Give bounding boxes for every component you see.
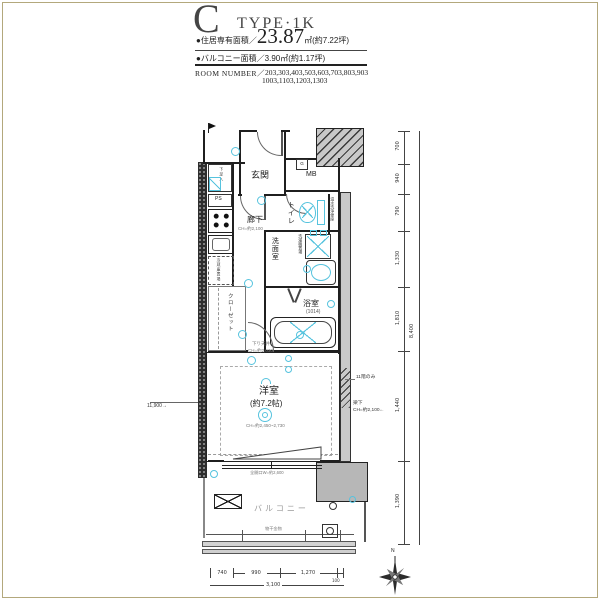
header-divider-thin [195, 50, 367, 51]
fridge-space-label: 冷蔵庫置場 [217, 258, 221, 282]
bathroom-label: 浴室 [303, 300, 319, 308]
area-line: ●住居専有面積／ 23.87 ㎡(約7.22坪) [196, 28, 376, 46]
corridor-label: 廊下 [247, 216, 263, 224]
left-distance-label: 11,900→ [147, 404, 167, 409]
ceiling-light-icon [257, 196, 266, 205]
flag-marker-icon [209, 123, 216, 129]
wall [239, 130, 241, 196]
ceiling-light-icon [238, 330, 247, 339]
beam-under-note-1: 梁下 [353, 401, 363, 406]
wall [338, 158, 340, 354]
laundry-fitting-note: 物干金物 [264, 527, 283, 531]
washer-space-label: 洗濯機置場 [298, 234, 302, 254]
bath-door-line [294, 288, 301, 302]
light-half-icon [261, 378, 271, 384]
entrance-door-leaf [281, 132, 283, 156]
wall [284, 130, 286, 196]
balcony-area-label: ●バルコニー面積／ [196, 53, 265, 64]
ceiling-light-icon [296, 331, 304, 339]
closet-label: クローゼット [226, 293, 232, 332]
entrance-door-arc [257, 132, 281, 156]
concrete-column [316, 462, 368, 502]
evacuation-hatch-x [215, 495, 241, 508]
header-divider-thick [195, 64, 367, 66]
pipe-space-label: PS [215, 197, 222, 202]
dim-value: 1,330 [395, 244, 401, 272]
window-note: 全開口W=約2,600 [250, 471, 284, 475]
main-room-ch-label: CH=約2,450~2,730 [246, 424, 285, 429]
dim-tick [398, 461, 410, 462]
beam-floor-note: 11階のみ [356, 375, 375, 380]
beam-under-note-2: CH=約2,100← [353, 408, 384, 413]
bathroom-size-label: (1014) [306, 310, 320, 315]
dim-tick [233, 568, 234, 578]
drop-ceiling-note-2: CH=約2,030 [248, 349, 273, 354]
balcony-edge-slab [202, 541, 356, 547]
dim-tick [398, 231, 410, 232]
entrance-label: 玄関 [251, 171, 269, 180]
dim-tick [398, 351, 410, 352]
dim-value: 700 [395, 132, 401, 160]
beam-note-leader [345, 379, 355, 380]
area-label: ●住居専有面積／ [196, 35, 257, 46]
common-area-hatch [316, 128, 364, 167]
balcony-label: バルコニー [254, 505, 309, 513]
toilet-tank-icon [317, 200, 325, 225]
window-center-tick [271, 461, 272, 469]
kitchen-sink-bowl [212, 238, 230, 251]
dim-tick [398, 194, 410, 195]
fridge-space-box [208, 256, 234, 285]
area-value: 23.87 [257, 28, 304, 46]
wall [266, 230, 340, 232]
drain-box-circle [326, 527, 334, 535]
wall [264, 194, 286, 196]
ceiling-rose-inner [262, 412, 268, 418]
bath-faucet-icon [327, 300, 335, 308]
dim-total-value: 3,100 [264, 582, 282, 588]
wall [320, 460, 340, 462]
wall [203, 130, 205, 164]
washer-tap-icon [310, 230, 317, 236]
floorplan-page: C TYPE·1K ●住居専有面積／ 23.87 ㎡(約7.22坪) ●バルコニ… [0, 0, 600, 600]
hose-bib-icon [349, 496, 356, 503]
vent-icon [210, 470, 218, 478]
closet-pipe-line [218, 288, 220, 349]
dim-value: 990 [245, 570, 267, 576]
main-room-label: 洋室 [259, 387, 279, 398]
entrance-step-icon [209, 177, 221, 191]
dim-value: 1,810 [395, 304, 401, 332]
main-room-size-label: (約7.2帖) [250, 400, 282, 408]
main-room-dashed-area [220, 366, 332, 456]
dim-value: 940 [395, 164, 401, 192]
ceiling-light-icon [231, 147, 240, 156]
dim-tick [343, 568, 344, 578]
dim-total-line [419, 131, 420, 545]
wall [286, 190, 340, 192]
dim-tick [398, 287, 410, 288]
drop-ceiling-note-1: 下り天井 [252, 342, 270, 347]
toilet-note-label: 温水洗浄便座 [330, 197, 334, 221]
gas-meter-icon: G [296, 159, 308, 170]
room-numbers-2: 1003,1103,1203,1303 [262, 77, 327, 85]
dim-tick [398, 544, 410, 545]
ceiling-light-icon [244, 279, 253, 288]
balcony-edge-slab2 [202, 549, 356, 554]
window-triangle-marker [232, 446, 322, 460]
balcony-right-wall [364, 502, 366, 542]
balcony-area-value: 3.90㎡(約1.17坪) [265, 53, 325, 64]
balcony-left-line [203, 478, 205, 538]
balcony-line: ●バルコニー面積／ 3.90㎡(約1.17坪) [196, 53, 325, 64]
dim-tick [337, 568, 338, 578]
corridor-ch-label: CH=約2,100 [238, 227, 263, 232]
dim-value: 1,270 [296, 570, 320, 576]
dim-value: 790 [395, 197, 401, 225]
room-number-label: ROOM NUMBER／ [195, 68, 265, 79]
faucet-icon [285, 355, 292, 362]
dim-value: 100 [332, 578, 340, 583]
ceiling-light-icon [303, 265, 311, 273]
drain-circle-icon [329, 502, 337, 510]
compass-north-label: N [391, 549, 395, 554]
wall [266, 286, 340, 288]
washer-tap-icon [320, 230, 327, 236]
meter-box-label: MB [306, 171, 317, 178]
faucet-icon [285, 366, 292, 373]
washbasin-bowl-icon [311, 264, 331, 281]
outer-wall-band-right [340, 192, 351, 462]
compass-rose-icon [374, 556, 416, 598]
area-unit: ㎡(約7.22坪) [304, 35, 349, 46]
wall [239, 130, 257, 132]
ceiling-light-icon [247, 356, 256, 365]
toilet-label: トイレ [287, 201, 294, 225]
beam-hatch [340, 368, 351, 408]
washing-machine-x [307, 236, 329, 257]
washroom-label: 洗面室 [271, 237, 278, 261]
stove-icon [208, 209, 234, 233]
dim-value: 1,440 [395, 391, 401, 419]
toilet-icon-x [302, 206, 313, 218]
dim-value: 1,390 [395, 487, 401, 515]
dim-tick [280, 568, 281, 578]
bath-door-line [287, 288, 294, 302]
dim-value: 740 [211, 570, 233, 576]
dim-total-value: 8,400 [409, 317, 415, 345]
